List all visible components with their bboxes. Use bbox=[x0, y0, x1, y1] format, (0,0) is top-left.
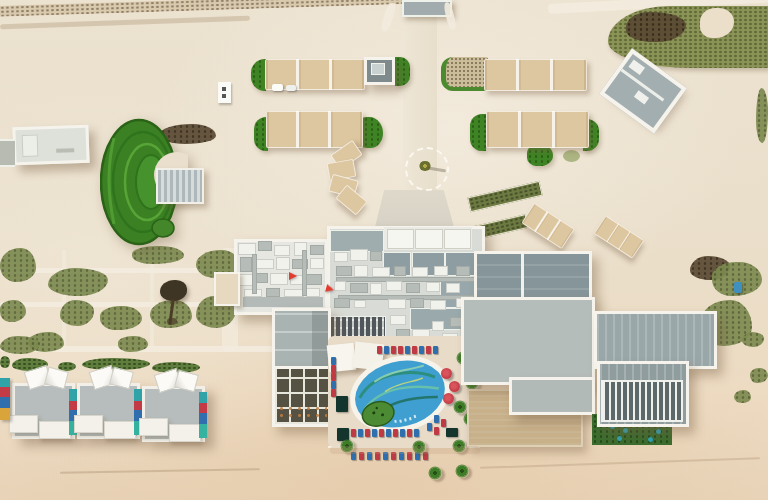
boardwalk-connector bbox=[62, 250, 66, 350]
planter-strip bbox=[254, 117, 268, 151]
shade-canopy bbox=[484, 59, 587, 91]
villa-tent-top bbox=[24, 365, 53, 390]
scrub-patch bbox=[132, 246, 184, 264]
villa-tent-top bbox=[174, 370, 199, 393]
signboard bbox=[218, 82, 231, 103]
scrub-patch bbox=[742, 332, 764, 347]
villa-roof bbox=[142, 386, 205, 442]
villa-tent-top bbox=[89, 365, 118, 390]
aerial-photo-resort bbox=[0, 0, 768, 500]
gray-roof-building bbox=[272, 308, 331, 370]
sign-mark bbox=[222, 94, 226, 98]
scrub-patch bbox=[756, 88, 768, 143]
shade-canopy bbox=[594, 215, 645, 259]
entry-ramp-left bbox=[380, 1, 398, 32]
shade-canopy-fan-panel bbox=[330, 140, 362, 170]
planter-strip bbox=[251, 59, 266, 91]
villa-roof bbox=[77, 383, 140, 439]
planter-strip bbox=[395, 57, 410, 86]
parked-cart bbox=[272, 84, 283, 91]
scrub-patch bbox=[690, 256, 730, 280]
roof-vent bbox=[56, 148, 74, 153]
roof-panel bbox=[22, 134, 39, 157]
sun-lounger bbox=[407, 452, 412, 460]
beach-villa bbox=[12, 383, 78, 439]
sun-lounger bbox=[399, 452, 404, 460]
parked-cart bbox=[286, 85, 296, 91]
roof-panel-gray bbox=[412, 252, 478, 276]
sign-mark bbox=[222, 87, 226, 91]
louver-pergola bbox=[601, 380, 683, 422]
hedge-strip bbox=[152, 362, 200, 373]
villa-porch bbox=[139, 418, 168, 436]
villa-mural-edge bbox=[0, 378, 10, 420]
villa-mural bbox=[199, 392, 207, 438]
sun-lounger bbox=[367, 452, 372, 460]
hedge-strip bbox=[12, 358, 48, 371]
gravel-path-faint bbox=[0, 16, 250, 30]
planter-bush bbox=[357, 117, 383, 148]
shade-canopy bbox=[521, 203, 574, 249]
concrete-roof-main bbox=[461, 297, 595, 385]
scrub-patch bbox=[60, 300, 94, 326]
beach-villa bbox=[77, 383, 143, 439]
dark-tree bbox=[160, 280, 187, 301]
hedge-strip bbox=[82, 358, 150, 370]
gravel-planter bbox=[441, 57, 488, 91]
beach-villa bbox=[142, 386, 208, 442]
palm-tree bbox=[428, 466, 442, 480]
boardwalk-connector bbox=[150, 250, 154, 348]
scrub-patch bbox=[100, 306, 142, 330]
trellis-dining-building bbox=[272, 366, 333, 427]
planter-strip bbox=[470, 114, 486, 151]
beach-track bbox=[480, 457, 760, 469]
shade-canopy-fan-panel bbox=[327, 159, 357, 181]
sun-lounger bbox=[359, 452, 364, 460]
boardwalk bbox=[0, 268, 238, 273]
sun-lounger bbox=[423, 452, 428, 460]
scrub-patch bbox=[0, 248, 36, 282]
planter-strip bbox=[583, 119, 599, 151]
shade-canopy-fan-panel bbox=[335, 184, 367, 215]
villa-mural bbox=[134, 389, 142, 435]
villa-porch bbox=[74, 415, 103, 433]
scrub-patch bbox=[0, 336, 40, 354]
scrub-patch bbox=[750, 368, 768, 383]
kiosk-skylight bbox=[371, 63, 385, 75]
scrub-patch bbox=[118, 336, 148, 352]
sun-lounger bbox=[415, 452, 420, 460]
roof-panel-gray bbox=[330, 230, 384, 252]
villa-porch bbox=[169, 424, 201, 442]
villa-porch bbox=[104, 421, 136, 439]
roof-unit bbox=[634, 90, 649, 104]
stage-structure bbox=[156, 168, 204, 204]
villa-porch bbox=[39, 421, 71, 439]
sun-lounger bbox=[391, 452, 396, 460]
sun-lounger bbox=[351, 452, 356, 460]
service-annex bbox=[0, 139, 15, 167]
roof-panel-gray bbox=[383, 252, 411, 276]
skylight bbox=[415, 229, 443, 249]
bush-cluster bbox=[527, 144, 553, 166]
villa-tent-top bbox=[109, 367, 134, 390]
deck-edge bbox=[328, 446, 480, 448]
left-wing-gray-band bbox=[243, 297, 323, 307]
sun-lounger bbox=[375, 452, 380, 460]
tree-shadow-root bbox=[167, 318, 177, 325]
skylight bbox=[387, 229, 414, 249]
service-building-left bbox=[12, 125, 89, 166]
villa-mural bbox=[69, 389, 77, 435]
villa-tent-top bbox=[154, 368, 183, 393]
dark-roof-panels bbox=[474, 251, 592, 303]
swimming-pool bbox=[346, 352, 454, 440]
small-canopy bbox=[214, 272, 240, 306]
hedge-strip bbox=[58, 362, 76, 371]
concrete-roof-step bbox=[509, 377, 595, 415]
blue-play-structure bbox=[734, 282, 742, 293]
dining-tables bbox=[277, 405, 327, 421]
scrub-patch bbox=[734, 390, 751, 403]
shade-canopy-fan-panel bbox=[328, 174, 359, 198]
entry-ramp-right bbox=[443, 1, 458, 30]
diagonal-planter bbox=[467, 181, 542, 212]
beach-track bbox=[60, 468, 260, 473]
roof-unit bbox=[628, 60, 645, 76]
shade-canopy bbox=[266, 111, 363, 148]
light-bush bbox=[563, 150, 580, 162]
villa-roof bbox=[12, 383, 75, 439]
boardwalk bbox=[0, 302, 240, 307]
villa-tent-top bbox=[44, 367, 69, 390]
gravel-path-top bbox=[0, 0, 405, 17]
palm-tree bbox=[455, 464, 469, 478]
scrub-patch bbox=[28, 332, 64, 352]
villa-porch bbox=[9, 415, 38, 433]
scrub-patch bbox=[48, 268, 108, 296]
hedge-strip bbox=[0, 356, 10, 368]
shade-canopy bbox=[486, 111, 589, 148]
sun-lounger bbox=[383, 452, 388, 460]
skylight bbox=[444, 229, 471, 249]
scrub-patch bbox=[0, 300, 26, 322]
